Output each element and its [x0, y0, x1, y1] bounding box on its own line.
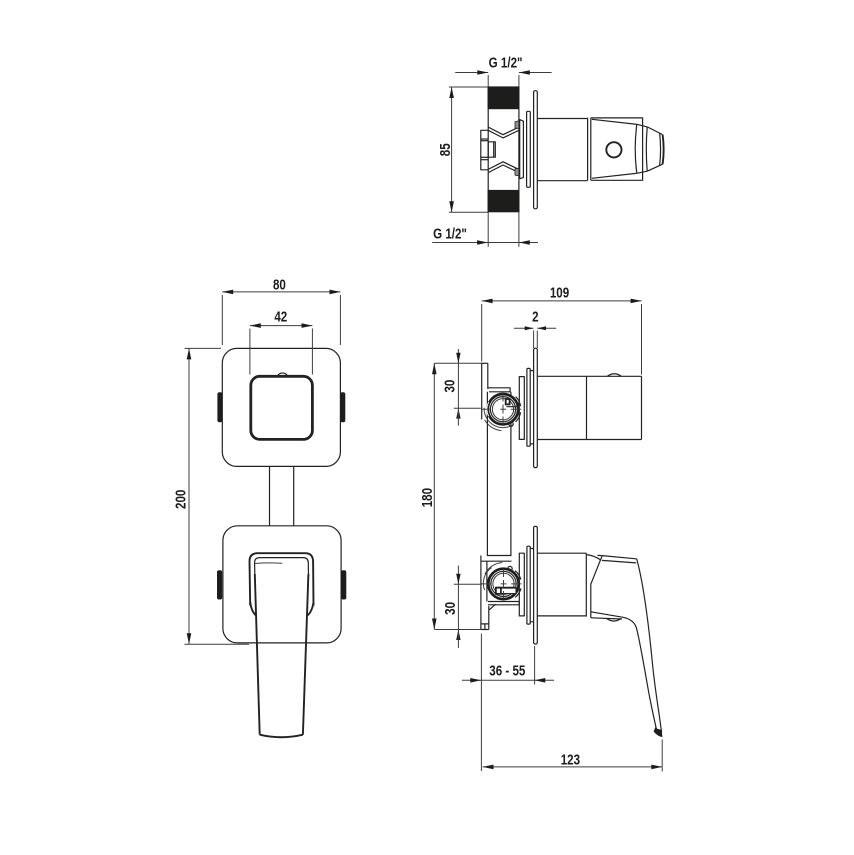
svg-text:200: 200: [172, 490, 189, 509]
svg-text:109: 109: [550, 284, 569, 301]
svg-text:180: 180: [419, 488, 436, 507]
svg-text:G 1/2": G 1/2": [433, 225, 467, 242]
svg-text:85: 85: [437, 143, 454, 156]
svg-text:30: 30: [442, 602, 459, 615]
svg-text:G 1/2": G 1/2": [489, 54, 523, 71]
svg-text:36 - 55: 36 - 55: [489, 662, 525, 679]
svg-text:2: 2: [532, 308, 538, 325]
svg-text:30: 30: [441, 380, 458, 393]
svg-text:80: 80: [273, 276, 286, 293]
svg-text:123: 123: [561, 751, 580, 768]
svg-text:42: 42: [274, 308, 287, 325]
